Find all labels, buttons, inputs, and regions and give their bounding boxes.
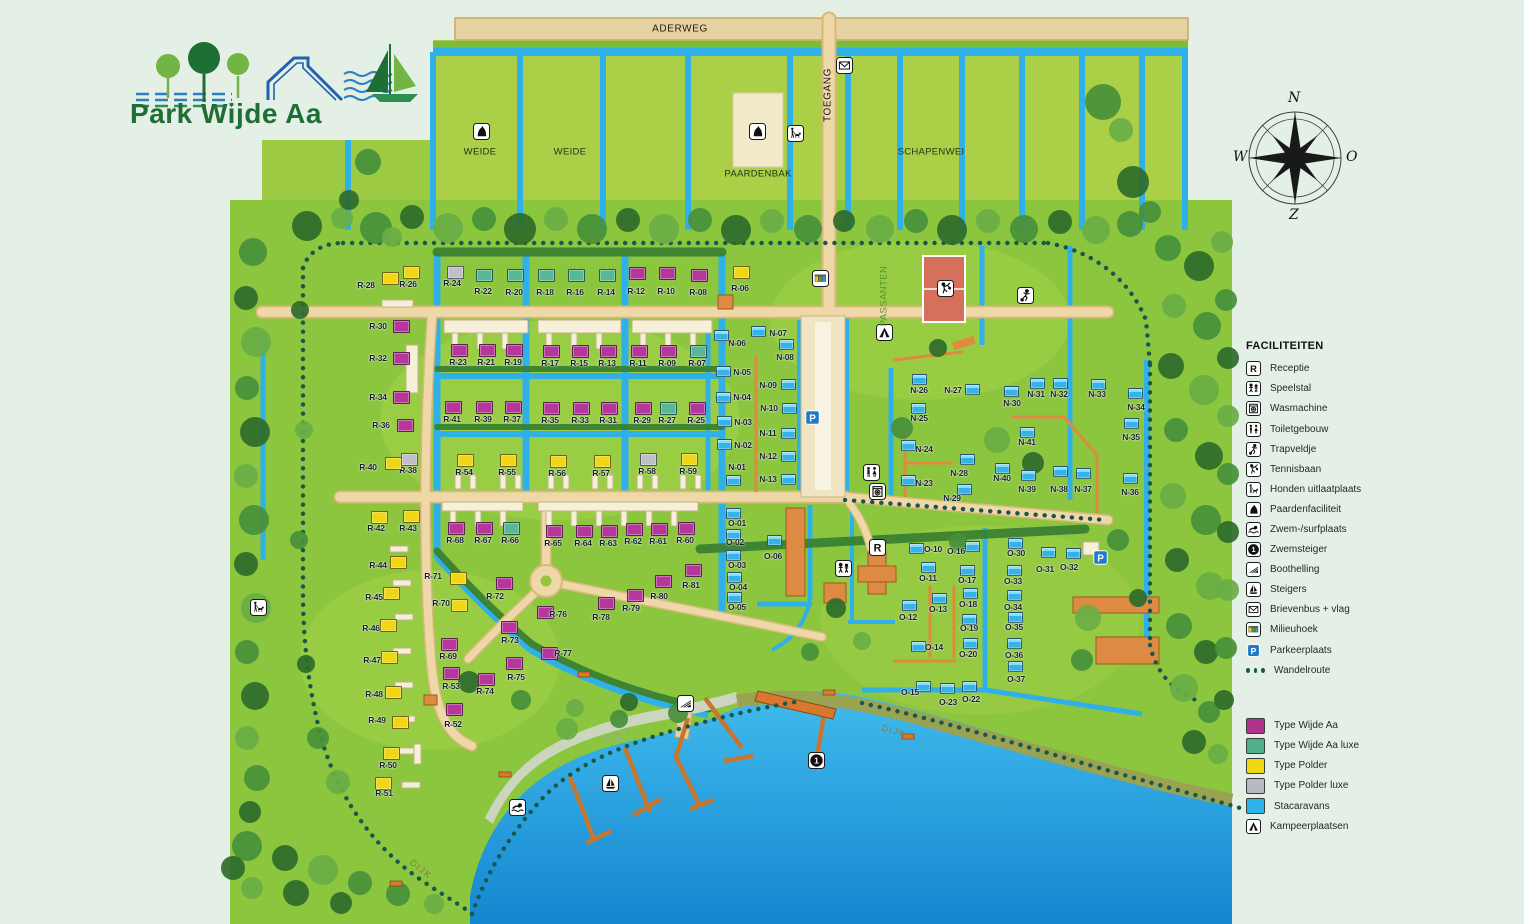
plot-label: O-03	[728, 560, 746, 570]
plot-label: N-04	[733, 392, 751, 402]
plot-R-59	[681, 453, 698, 466]
type-color-chip	[1246, 718, 1265, 734]
paarden-icon	[473, 123, 490, 140]
plot-label: R-51	[375, 788, 393, 798]
honden-icon	[787, 125, 804, 142]
plot-label: R-18	[536, 287, 554, 297]
plot-R-80	[655, 575, 672, 588]
parkeerplaats-icon: P	[1246, 643, 1261, 658]
legend-type: Type Wijde Aa luxe	[1246, 738, 1522, 754]
plot-O-06	[767, 535, 782, 546]
plot-R-72	[496, 577, 513, 590]
plot-label: N-37	[1074, 484, 1092, 494]
plot-label: R-09	[658, 358, 676, 368]
plot-N-03	[717, 416, 732, 427]
zwem-icon	[509, 799, 526, 816]
area-label-schapenwei: SCHAPENWEI	[898, 147, 965, 158]
legend-item: Zwem-/surfplaats	[1246, 522, 1522, 538]
compass-rose: N O W Z	[1233, 96, 1357, 220]
honden-icon	[250, 599, 267, 616]
plot-label: O-06	[764, 551, 782, 561]
wandelroute-icon	[1246, 668, 1265, 673]
plot-label: R-30	[369, 321, 387, 331]
legend-item: Paardenfaciliteit	[1246, 502, 1522, 518]
legend-item-label: Receptie	[1270, 363, 1309, 374]
plot-R-68	[448, 522, 465, 535]
plot-label: R-65	[544, 538, 562, 548]
plot-O-03	[726, 550, 741, 561]
plot-label: R-55	[498, 467, 516, 477]
milieuhoek-icon	[812, 270, 829, 287]
svg-text:R: R	[1250, 364, 1257, 374]
legend-title: FACILITEITEN	[1246, 340, 1522, 352]
plot-label: R-10	[657, 286, 675, 296]
plot-N-24	[901, 440, 916, 451]
plot-R-08	[691, 269, 708, 282]
plot-label: R-50	[379, 760, 397, 770]
plot-N-01	[726, 475, 741, 486]
plot-label: R-13	[598, 358, 616, 368]
area-label-dijk: DIJK	[880, 723, 907, 740]
plot-N-40	[995, 463, 1010, 474]
legend-item: Trapveldje	[1246, 441, 1522, 457]
plot-N-41	[1020, 427, 1035, 438]
plot-label: R-07	[688, 358, 706, 368]
paarden-icon	[749, 123, 766, 140]
plot-N-10	[782, 403, 797, 414]
svg-text:1: 1	[814, 755, 819, 765]
plot-label: N-27	[944, 385, 962, 395]
plot-label: O-02	[726, 537, 744, 547]
plot-label: O-13	[929, 604, 947, 614]
plot-label: R-38	[399, 465, 417, 475]
legend-item: Speelstal	[1246, 381, 1522, 397]
plot-label: O-11	[919, 573, 937, 583]
plot-O-34	[1007, 590, 1022, 601]
legend-item-label: Honden uitlaatplaats	[1270, 484, 1361, 495]
plot-label: R-64	[574, 538, 592, 548]
plot-label: N-33	[1088, 389, 1106, 399]
plot-R-64	[576, 525, 593, 538]
plot-O-37	[1008, 661, 1023, 672]
plot-label: R-52	[444, 719, 462, 729]
plot-label: N-38	[1050, 484, 1068, 494]
plot-R-28	[382, 272, 399, 285]
plot-label: R-42	[367, 523, 385, 533]
legend-type-label: Stacaravans	[1274, 801, 1330, 812]
plot-label: R-41	[443, 414, 461, 424]
plot-label: R-27	[658, 415, 676, 425]
legend-item: Wasmachine	[1246, 401, 1522, 417]
plot-R-74	[478, 673, 495, 686]
plot-label: R-39	[474, 414, 492, 424]
plot-label: O-14	[925, 642, 943, 652]
logo-art-icon	[128, 36, 440, 148]
toiletgebouw-icon	[1246, 422, 1261, 437]
plot-label: O-19	[960, 623, 978, 633]
plot-R-71	[450, 572, 467, 585]
plot-R-19	[506, 344, 523, 357]
plot-label: R-40	[359, 462, 377, 472]
type-color-chip	[1246, 758, 1265, 774]
plot-label: R-59	[679, 466, 697, 476]
plot-N-13	[781, 474, 796, 485]
plot-R-69	[441, 638, 458, 651]
plot-label: R-61	[649, 536, 667, 546]
plot-label: R-74	[476, 686, 494, 696]
plot-R-34	[393, 391, 410, 404]
plot-label: N-29	[943, 493, 961, 503]
plot-O-11	[921, 562, 936, 573]
compass-west-label: W	[1233, 149, 1247, 165]
plot-R-73	[501, 621, 518, 634]
plot-label: N-26	[910, 385, 928, 395]
plot-N-28	[960, 454, 975, 465]
tennisbaan-icon	[1246, 462, 1261, 477]
zwem-icon	[1246, 522, 1261, 537]
plot-R-60	[678, 522, 695, 535]
legend-item-label: Toiletgebouw	[1270, 424, 1328, 435]
plot-label: R-21	[477, 357, 495, 367]
plot-label: R-56	[548, 468, 566, 478]
plot-R-15	[572, 345, 589, 358]
plot-N-05	[716, 366, 731, 377]
plot-label: O-34	[1004, 602, 1022, 612]
plot-label: N-07	[769, 328, 787, 338]
plot-label: O-31	[1036, 564, 1054, 574]
plot-label: R-20	[505, 287, 523, 297]
legend-item: 1Zwemsteiger	[1246, 542, 1522, 558]
plot-label: N-11	[759, 428, 776, 438]
plot-R-10	[659, 267, 676, 280]
steigers-icon	[1246, 582, 1261, 597]
plot-R-26	[403, 266, 420, 279]
plot-label: O-33	[1004, 576, 1022, 586]
area-label-paardenbak: PAARDENBAK	[724, 169, 791, 180]
plot-O-16	[965, 541, 980, 552]
plot-O-18	[963, 588, 978, 599]
plot-O-14	[911, 641, 926, 652]
tennisbaan-icon	[937, 280, 954, 297]
plot-R-38	[401, 453, 418, 466]
steigers-icon	[602, 775, 619, 792]
plot-R-62	[626, 523, 643, 536]
plot-O-31	[1041, 547, 1056, 558]
plot-label: R-79	[622, 603, 640, 613]
wasmachine-icon	[1246, 401, 1261, 416]
plot-N-38	[1053, 466, 1068, 477]
plot-label: R-31	[599, 415, 617, 425]
compass-south-label: Z	[1289, 207, 1299, 223]
plot-label: R-57	[592, 468, 610, 478]
plot-R-45	[383, 587, 400, 600]
legend-item-label: Zwem-/surfplaats	[1270, 524, 1347, 535]
plot-N-06	[714, 330, 729, 341]
plot-O-13	[932, 593, 947, 604]
plot-label: O-20	[959, 649, 977, 659]
legend-type: Stacaravans	[1246, 798, 1522, 814]
legend-item-label: Paardenfaciliteit	[1270, 504, 1341, 515]
plot-label: O-17	[958, 575, 976, 585]
plot-label: R-66	[501, 535, 519, 545]
plot-N-32	[1053, 378, 1068, 389]
legend-item: Milieuhoek	[1246, 622, 1522, 638]
plot-R-42	[371, 511, 388, 524]
legend-type-label: Type Wijde Aa luxe	[1274, 740, 1359, 751]
plot-label: R-63	[599, 538, 617, 548]
type-color-chip	[1246, 778, 1265, 794]
plot-label: N-08	[776, 352, 794, 362]
plot-label: R-47	[363, 655, 381, 665]
plot-label: R-72	[486, 591, 504, 601]
plot-label: N-25	[910, 413, 928, 423]
park-logo: Park Wijde Aa	[128, 36, 440, 148]
plot-label: R-15	[570, 358, 588, 368]
brievenbus-icon	[836, 57, 853, 74]
area-label-weide: WEIDE	[464, 147, 497, 158]
plot-O-30	[1008, 538, 1023, 549]
plot-R-70	[451, 599, 468, 612]
plot-N-36	[1123, 473, 1138, 484]
plot-label: R-12	[627, 286, 645, 296]
plot-label: R-48	[365, 689, 383, 699]
kampeer-icon	[1246, 819, 1261, 834]
plot-label: N-10	[760, 403, 778, 413]
brievenbus-icon	[1246, 602, 1261, 617]
plot-O-32	[1066, 548, 1081, 559]
plot-label: R-53	[442, 681, 460, 691]
plot-label: R-14	[597, 287, 615, 297]
legend-item: Brievenbus + vlag	[1246, 602, 1522, 618]
plot-R-14	[599, 269, 616, 282]
plot-label: O-15	[901, 687, 919, 697]
plot-label: R-35	[541, 415, 559, 425]
legend-item: Steigers	[1246, 582, 1522, 598]
legend-type-label: Type Wijde Aa	[1274, 720, 1338, 731]
plot-R-39	[476, 401, 493, 414]
compass-east-label: O	[1346, 149, 1357, 165]
plot-label: R-26	[399, 279, 417, 289]
plot-R-24	[447, 266, 464, 279]
plot-O-20	[963, 638, 978, 649]
plot-label: R-34	[369, 392, 387, 402]
plot-R-40	[385, 457, 402, 470]
plot-N-39	[1021, 470, 1036, 481]
plot-R-58	[640, 453, 657, 466]
legend-item-label: Zwemsteiger	[1270, 544, 1327, 555]
plot-R-63	[601, 525, 618, 538]
plot-label: N-35	[1122, 432, 1140, 442]
plot-O-01	[726, 508, 741, 519]
plot-R-41	[445, 401, 462, 414]
plot-R-81	[685, 564, 702, 577]
plot-label: O-22	[962, 694, 980, 704]
plot-label: R-23	[449, 357, 467, 367]
plot-label: R-67	[474, 535, 492, 545]
plot-R-06	[733, 266, 750, 279]
plot-R-31	[601, 402, 618, 415]
plot-label: N-34	[1127, 402, 1145, 412]
plot-label: O-30	[1007, 548, 1025, 558]
plot-N-33	[1091, 379, 1106, 390]
plot-R-55	[500, 454, 517, 467]
plot-label: R-06	[731, 283, 749, 293]
legend-item: Tennisbaan	[1246, 461, 1522, 477]
plot-label: N-39	[1018, 484, 1036, 494]
plot-N-35	[1124, 418, 1139, 429]
legend-type-label: Type Polder luxe	[1274, 780, 1349, 791]
legend-item-label: Trapveldje	[1270, 444, 1316, 455]
plot-label: R-76	[549, 609, 567, 619]
legend-type-label: Kampeerplaatsen	[1270, 821, 1348, 832]
wasmachine-icon	[869, 483, 886, 500]
trapveldje-icon	[1017, 287, 1034, 304]
plot-O-05	[727, 592, 742, 603]
plot-R-13	[600, 345, 617, 358]
plot-label: N-28	[950, 468, 968, 478]
plot-R-65	[546, 525, 563, 538]
plot-R-47	[381, 651, 398, 664]
plot-label: R-45	[365, 592, 383, 602]
plot-O-12	[902, 600, 917, 611]
legend-item-label: Boothelling	[1270, 564, 1319, 575]
plot-O-22	[962, 681, 977, 692]
plot-R-78	[598, 597, 615, 610]
plot-N-34	[1128, 388, 1143, 399]
plot-N-02	[717, 439, 732, 450]
type-color-chip	[1246, 738, 1265, 754]
legend-type: Type Polder luxe	[1246, 778, 1522, 794]
trapveldje-icon	[1246, 442, 1261, 457]
plot-label: N-13	[759, 474, 777, 484]
paarden-icon	[1246, 502, 1261, 517]
plot-label: N-41	[1018, 437, 1036, 447]
legend-item: Honden uitlaatplaats	[1246, 482, 1522, 498]
plot-label: O-37	[1007, 674, 1025, 684]
plot-R-66	[503, 522, 520, 535]
svg-text:P: P	[809, 413, 816, 424]
plot-R-09	[660, 345, 677, 358]
plot-label: O-36	[1005, 650, 1023, 660]
legend-item-label: Wandelroute	[1274, 665, 1330, 676]
plot-label: R-46	[362, 623, 380, 633]
plot-R-25	[689, 402, 706, 415]
speelstal-icon	[1246, 381, 1261, 396]
plot-R-36	[397, 419, 414, 432]
plot-label: R-70	[432, 598, 450, 608]
plot-R-48	[385, 686, 402, 699]
parkeerplaats-icon: P	[1092, 549, 1109, 566]
plot-N-31	[1030, 378, 1045, 389]
plot-label: R-49	[368, 715, 386, 725]
area-label-riet: RIET	[603, 728, 634, 746]
plot-R-43	[403, 510, 420, 523]
type-color-chip	[1246, 798, 1265, 814]
plot-label: R-11	[629, 358, 646, 368]
plot-label: R-28	[357, 280, 375, 290]
plot-label: O-12	[899, 612, 917, 622]
plot-R-56	[550, 455, 567, 468]
plot-label: N-09	[759, 380, 777, 390]
legend-item-label: Tennisbaan	[1270, 464, 1321, 475]
legend-item-label: Wasmachine	[1270, 403, 1327, 414]
plot-label: O-35	[1005, 622, 1023, 632]
legend-item-label: Milieuhoek	[1270, 624, 1318, 635]
plot-R-29	[635, 402, 652, 415]
plot-R-79	[627, 589, 644, 602]
plot-label: N-03	[734, 417, 752, 427]
plot-label: O-04	[729, 582, 747, 592]
plot-label: R-80	[650, 591, 668, 601]
area-label-toegang: TOEGANG	[823, 68, 834, 122]
plot-label: N-06	[728, 338, 746, 348]
plot-label: R-36	[372, 420, 390, 430]
plot-label: R-77	[554, 648, 572, 658]
plot-label: R-78	[592, 612, 610, 622]
area-label-weide: WEIDE	[554, 147, 587, 158]
boothelling-icon	[1246, 562, 1261, 577]
plot-R-11	[631, 345, 648, 358]
plot-R-16	[568, 269, 585, 282]
plot-label: R-29	[633, 415, 651, 425]
plot-R-46	[380, 619, 397, 632]
plot-label: R-81	[682, 580, 700, 590]
plot-R-21	[479, 344, 496, 357]
legend-type: Type Polder	[1246, 758, 1522, 774]
plot-R-50	[383, 747, 400, 760]
park-title: Park Wijde Aa	[130, 98, 322, 130]
plot-label: R-60	[676, 535, 694, 545]
plot-label: N-02	[734, 440, 752, 450]
legend-item: Wandelroute	[1246, 662, 1522, 678]
milieuhoek-icon	[1246, 622, 1261, 637]
plot-O-36	[1007, 638, 1022, 649]
plot-R-20	[507, 269, 524, 282]
plot-label: R-54	[455, 467, 473, 477]
plot-label: N-05	[733, 367, 751, 377]
plot-N-30	[1004, 386, 1019, 397]
plot-label: N-36	[1121, 487, 1139, 497]
boothelling-icon	[677, 695, 694, 712]
plot-label: R-73	[501, 635, 519, 645]
plot-label: R-68	[446, 535, 464, 545]
plot-label: R-08	[689, 287, 707, 297]
svg-text:R: R	[873, 542, 881, 554]
plot-R-61	[651, 523, 668, 536]
park-map: R-06R-08R-10R-12R-14R-16R-18R-20R-22R-24…	[0, 0, 1524, 924]
receptie-icon: R	[1246, 361, 1261, 376]
plot-N-25	[911, 403, 926, 414]
toiletgebouw-icon	[863, 464, 880, 481]
plot-N-12	[781, 451, 796, 462]
plot-label: R-32	[369, 353, 387, 363]
compass-icon	[1233, 96, 1357, 220]
plot-N-07	[751, 326, 766, 337]
parkeerplaats-icon: P	[804, 409, 821, 426]
plot-O-33	[1007, 565, 1022, 576]
plot-label: R-16	[566, 287, 584, 297]
honden-icon	[1246, 482, 1261, 497]
plot-R-12	[629, 267, 646, 280]
plot-N-23	[901, 475, 916, 486]
svg-text:P: P	[1251, 645, 1257, 655]
plot-label: R-19	[504, 357, 522, 367]
plot-N-11	[781, 428, 796, 439]
area-label-dijk: DIJK	[408, 857, 434, 881]
svg-text:1: 1	[1251, 545, 1255, 554]
plot-label: O-23	[939, 697, 957, 707]
legend-item-label: Parkeerplaats	[1270, 645, 1332, 656]
